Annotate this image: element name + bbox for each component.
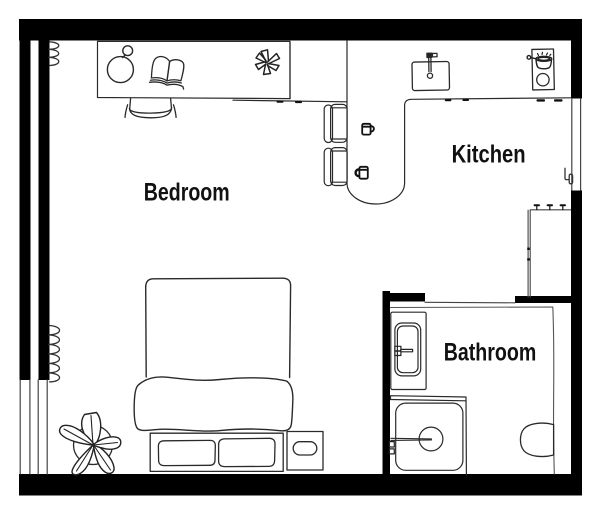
svg-text:Bedroom: Bedroom: [144, 178, 230, 206]
svg-text:Kitchen: Kitchen: [452, 141, 526, 169]
svg-text:Bathroom: Bathroom: [444, 338, 537, 366]
